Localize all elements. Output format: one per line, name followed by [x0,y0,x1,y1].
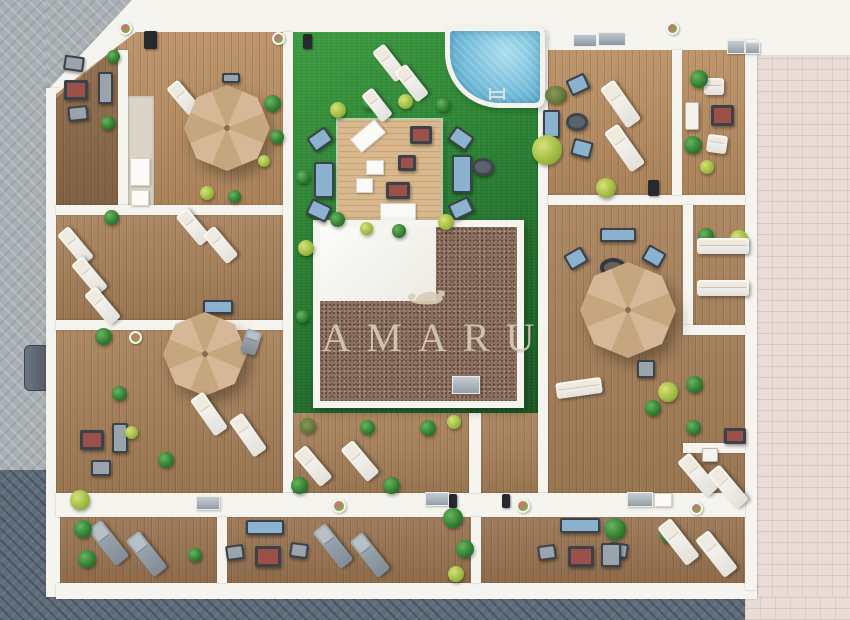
divider-wall [683,325,745,335]
planter-bush [95,328,112,345]
planter-bush [158,452,174,468]
side-table [637,360,655,378]
planter-bush [360,222,373,235]
platform-mat [356,178,373,193]
flower-pot [272,32,285,45]
lounge-sofa-blue [600,228,636,242]
lounge-chair-gray [537,544,557,561]
platform-cushion [398,155,416,171]
outer-wall-right [745,40,757,590]
lounge-chair-gray [67,105,88,122]
palm-plant [532,135,562,165]
divider-wall [469,413,481,493]
palm-plant [443,508,463,528]
divider-wall [56,205,285,215]
planter-bush [398,94,413,109]
planter-bush [101,116,115,130]
planter-bush [448,566,464,582]
deck-chair [706,134,728,155]
lounge-chair-gray [225,544,245,561]
parasol-canopy [580,262,676,358]
palm-plant [545,86,567,104]
flower-pot [690,502,703,515]
wall-counter-unit [627,492,653,507]
parasol-left-lower [163,312,247,396]
planter-bush [300,418,316,434]
planter-bush [125,426,138,439]
lounge-chair-gray [63,55,85,73]
divider-wall [118,50,128,208]
lounge-sofa-blue [246,520,284,535]
bbq-grill [303,34,312,49]
palm-plant [684,136,702,154]
roof-utility-box [452,376,480,394]
parasol-right-middle [580,262,676,358]
round-table [566,113,588,131]
lounge-chair-gray [91,460,111,476]
skylight-panel [573,34,597,47]
divider-wall [672,50,682,195]
fire-table-red [711,105,734,126]
platform-cushion [410,126,432,144]
street-cobbles-left [0,0,46,470]
parasol-canopy [184,85,270,171]
planter-bush [200,186,214,200]
planter-bush [436,98,450,112]
rooftop-unit [745,42,760,54]
wall-counter-unit [654,493,672,507]
planter-bush [112,386,127,401]
outdoor-kitchen-unit [131,190,149,206]
street-paving-right [757,55,850,620]
lounge-sofa-blue [314,162,334,198]
planter-bush [360,420,375,435]
sun-lounger [697,238,749,254]
skylight-panel [598,32,626,46]
planter-bush [291,477,308,494]
parasol-top-left [184,85,270,171]
roof-white-section [320,227,436,301]
render-canvas: AMARU [0,0,850,620]
planter-bush [296,310,309,323]
flower-pot [516,499,530,513]
outdoor-kitchen-sink [130,158,150,186]
palm-plant [658,382,678,402]
bench [685,102,699,130]
light-bollard [502,494,510,508]
planter-bush [438,214,454,230]
round-table [472,158,494,176]
lounge-chair-gray [289,542,309,559]
planter-bush [270,130,284,144]
flower-pot [666,22,679,35]
palm-plant [78,550,96,568]
planter-bush [228,190,241,203]
platform-cushion [386,182,410,199]
palm-plant [686,420,701,435]
courtyard-wall-west [283,32,293,493]
parasol-canopy [163,312,247,396]
planter-bush [447,415,461,429]
palm-plant [690,70,708,88]
street-setts-bottom [0,597,745,620]
terrace-deck-courtyard-south [293,413,538,493]
wall-counter-unit [425,492,449,506]
flower-pot [129,331,142,344]
planter-bush [330,102,346,118]
planter-bush [383,477,400,494]
lounge-sofa-blue [560,518,600,533]
lounge-sofa-blue [543,110,560,138]
street-paving-bottom-right [745,597,850,620]
side-table [222,73,240,83]
palm-plant [604,518,626,540]
planter-bush [392,224,406,238]
bbq-grill [648,180,659,196]
palm-plant [70,490,90,510]
flower-pot [119,22,132,35]
divider-wall [683,205,693,325]
palm-plant [74,520,92,538]
planter-bush [296,170,310,184]
planter-bush [298,240,314,256]
planter-bush [258,155,270,167]
planter-bush [596,178,616,198]
flower-pot [332,499,346,513]
ottoman [702,448,718,462]
coffee-table-red [64,80,88,100]
planter-bush [420,420,436,436]
planter-bush [104,210,119,225]
bbq-grill [144,31,157,49]
palm-plant [645,400,661,416]
lounge-sofa-gray [98,72,113,104]
sun-lounger [697,280,749,296]
lounge-sofa-blue [452,155,472,193]
planter-bush [264,95,281,112]
coffee-table-red [80,430,104,450]
palm-plant [456,540,474,558]
outer-wall-bottom [56,583,757,599]
planter-bush [700,160,714,174]
rooftop-unit [727,40,745,54]
planter-bush [107,50,120,63]
light-bollard [449,494,457,508]
planter-bush [330,212,345,227]
planter-bush [188,548,202,562]
fire-table-red [724,428,746,444]
wall-counter-unit [196,496,220,510]
planter-bush [686,376,703,393]
coffee-table-red [255,546,281,567]
divider-wall [548,195,745,205]
pool-ladder [489,88,505,100]
coffee-table-red [568,546,594,567]
lounge-chair-gray [601,543,621,567]
platform-mat [366,160,384,175]
